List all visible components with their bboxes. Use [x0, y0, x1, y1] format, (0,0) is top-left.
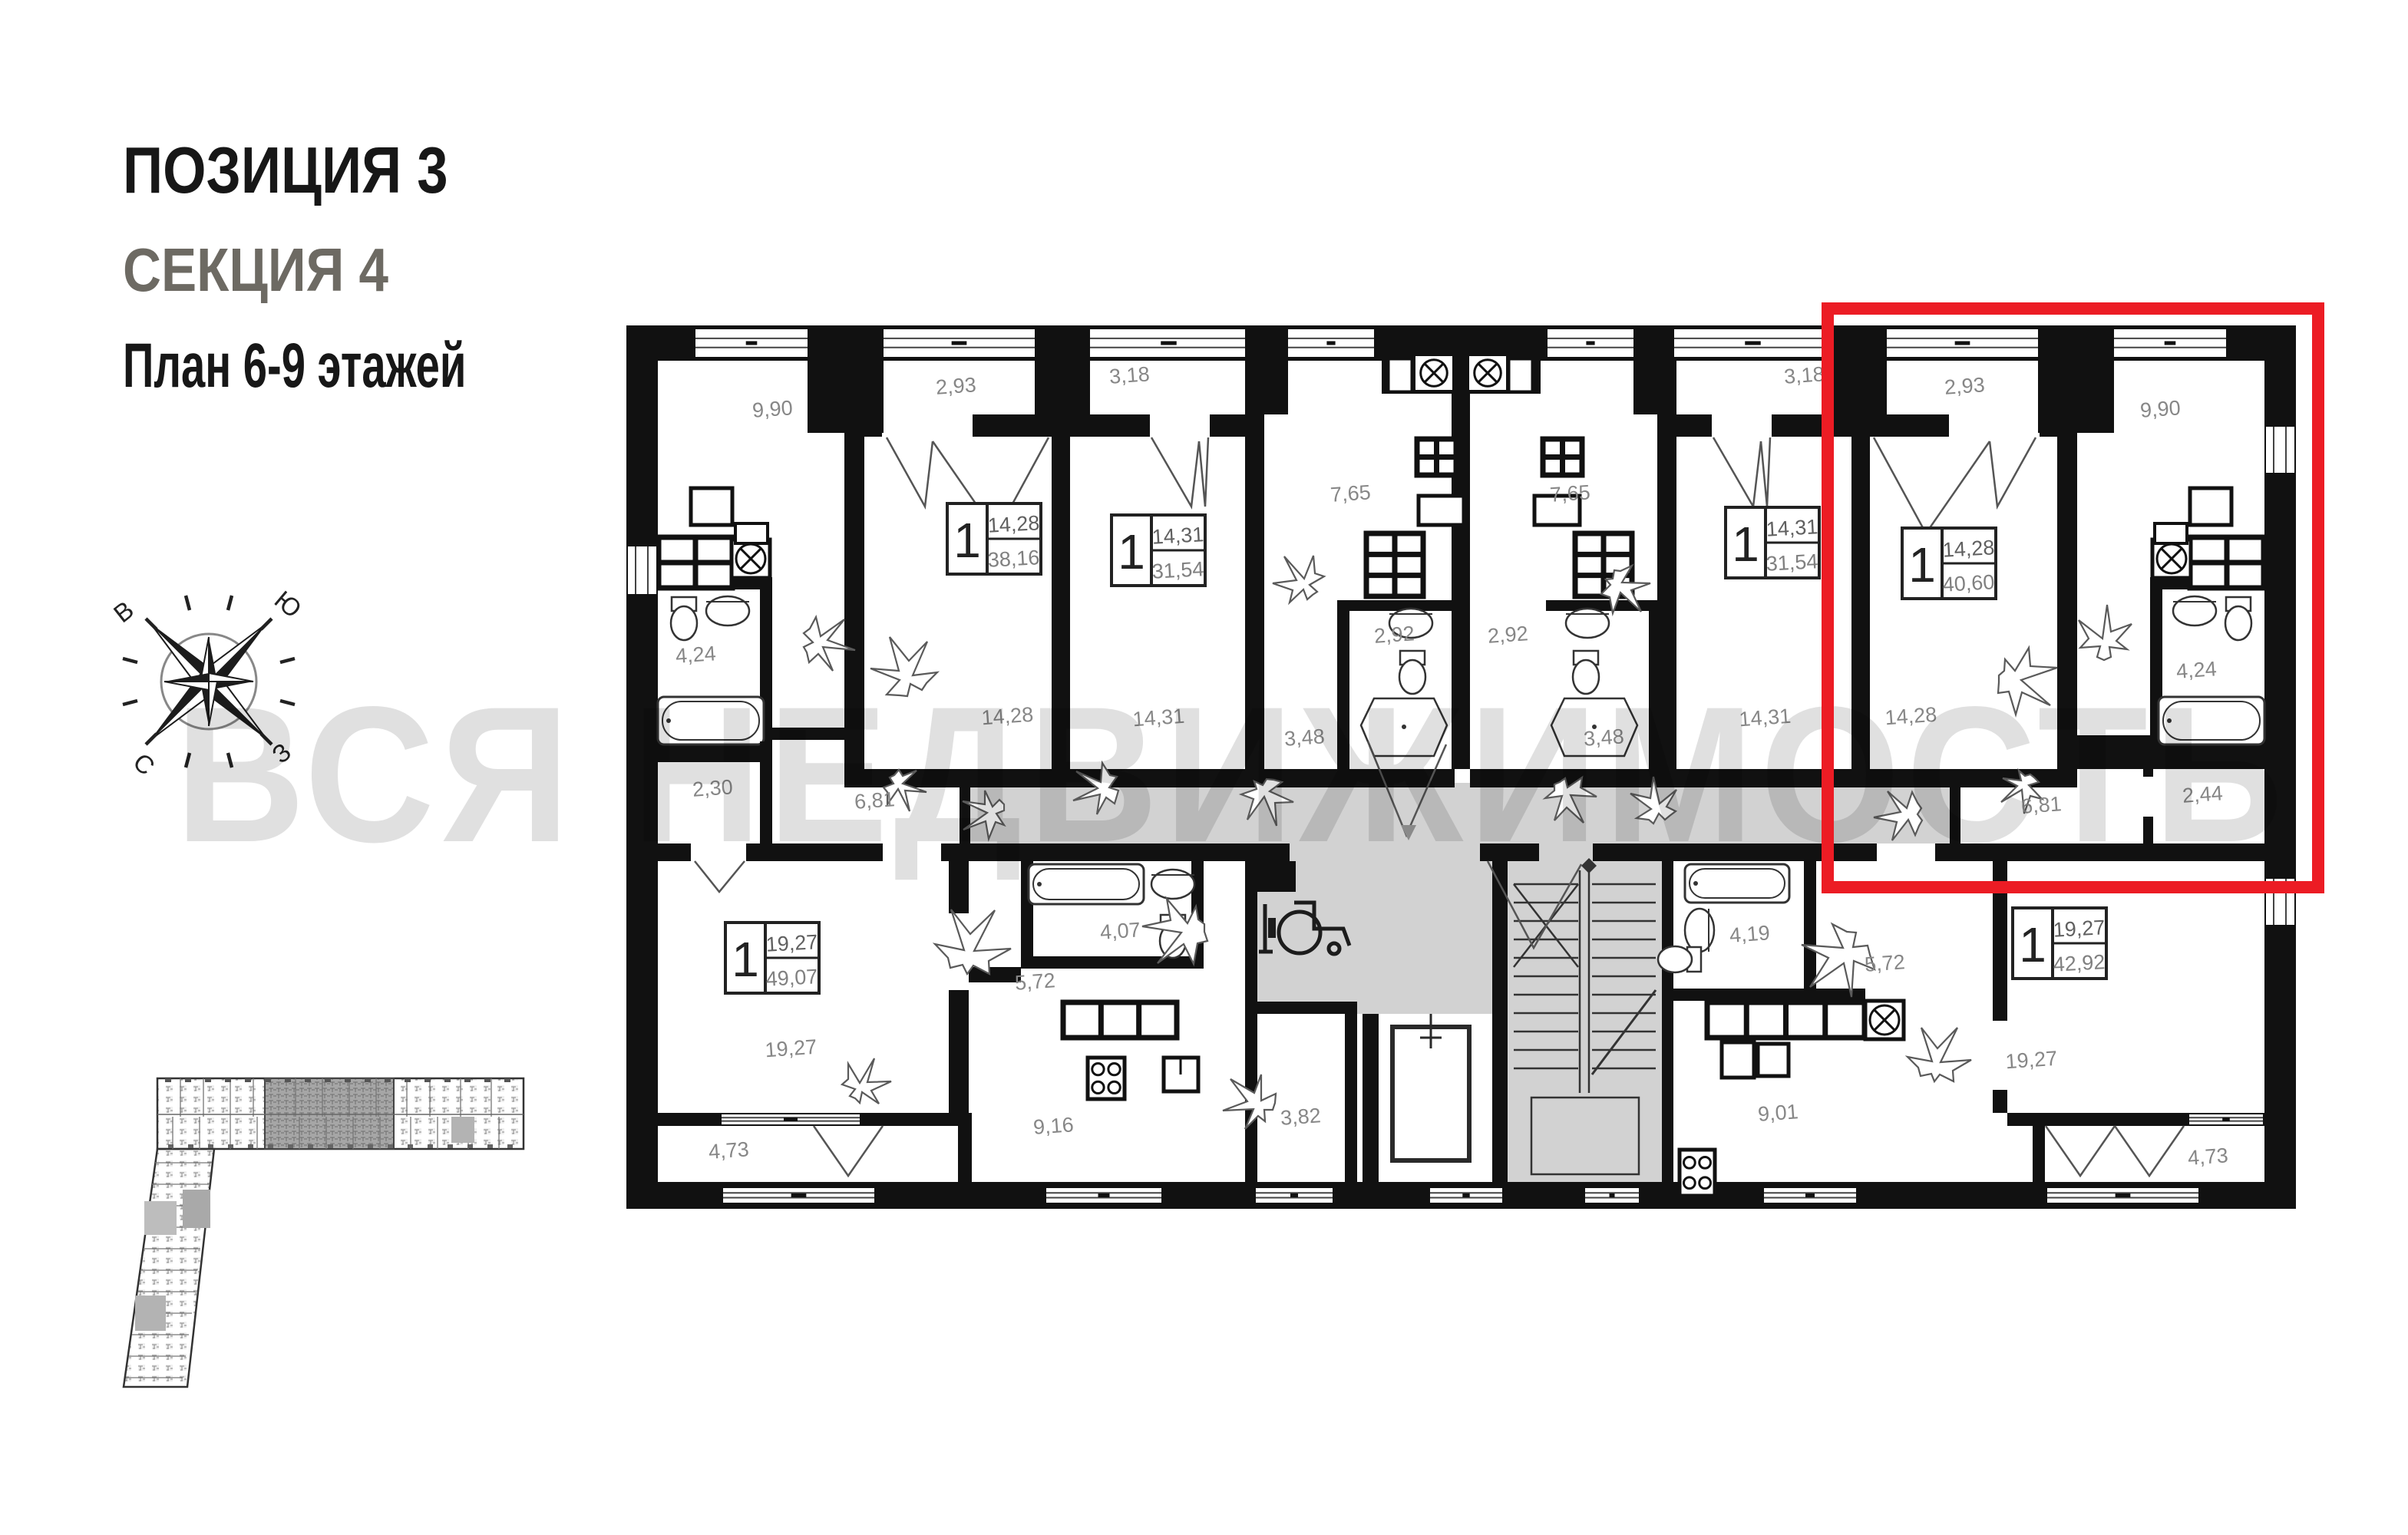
svg-text:4,19: 4,19: [1729, 921, 1771, 947]
svg-text:1: 1: [1908, 537, 1936, 593]
svg-text:40,60: 40,60: [1942, 570, 1995, 596]
svg-text:19,27: 19,27: [2005, 1047, 2059, 1074]
svg-text:4,07: 4,07: [1099, 918, 1141, 944]
svg-text:9,90: 9,90: [751, 396, 794, 422]
svg-text:1: 1: [1732, 517, 1759, 572]
svg-text:1: 1: [2019, 917, 2046, 972]
svg-text:4,73: 4,73: [2187, 1144, 2229, 1170]
svg-text:1: 1: [953, 513, 981, 568]
svg-text:42,92: 42,92: [2053, 950, 2106, 975]
svg-text:5,72: 5,72: [1864, 950, 1906, 976]
svg-text:План 6-9 этажей: План 6-9 этажей: [123, 329, 466, 400]
svg-text:14,31: 14,31: [1151, 523, 1204, 548]
svg-text:31,54: 31,54: [1151, 557, 1204, 583]
svg-text:2,92: 2,92: [1373, 622, 1415, 648]
svg-text:7,65: 7,65: [1330, 480, 1372, 507]
svg-text:СЕКЦИЯ 4: СЕКЦИЯ 4: [123, 235, 388, 304]
svg-text:1: 1: [1118, 524, 1145, 579]
svg-text:2,93: 2,93: [935, 373, 977, 399]
svg-text:5,72: 5,72: [1014, 969, 1056, 995]
svg-text:2,93: 2,93: [1944, 373, 1986, 399]
svg-text:2,92: 2,92: [1487, 622, 1529, 648]
svg-text:9,90: 9,90: [2139, 396, 2182, 422]
svg-text:3,18: 3,18: [1783, 362, 1825, 388]
svg-text:14,28: 14,28: [1942, 536, 1995, 561]
svg-text:3,82: 3,82: [1280, 1104, 1322, 1130]
svg-text:19,27: 19,27: [2053, 916, 2106, 941]
svg-text:1: 1: [732, 932, 759, 987]
svg-text:ПОЗИЦИЯ 3: ПОЗИЦИЯ 3: [123, 134, 448, 207]
svg-text:14,31: 14,31: [1766, 515, 1818, 540]
svg-text:31,54: 31,54: [1766, 550, 1818, 575]
svg-text:4,24: 4,24: [675, 642, 717, 668]
svg-text:9,01: 9,01: [1757, 1100, 1799, 1126]
svg-text:4,73: 4,73: [708, 1137, 750, 1164]
svg-text:38,16: 38,16: [987, 546, 1040, 571]
svg-text:9,16: 9,16: [1032, 1113, 1075, 1139]
svg-text:3,18: 3,18: [1108, 362, 1151, 388]
svg-text:19,27: 19,27: [765, 930, 818, 956]
svg-text:ВСЯ НЕДВИЖИМОСТЬ: ВСЯ НЕДВИЖИМОСТЬ: [175, 665, 2289, 882]
svg-text:14,28: 14,28: [987, 511, 1040, 536]
svg-text:19,27: 19,27: [765, 1035, 818, 1062]
svg-text:7,65: 7,65: [1549, 480, 1591, 507]
svg-text:49,07: 49,07: [765, 965, 818, 990]
